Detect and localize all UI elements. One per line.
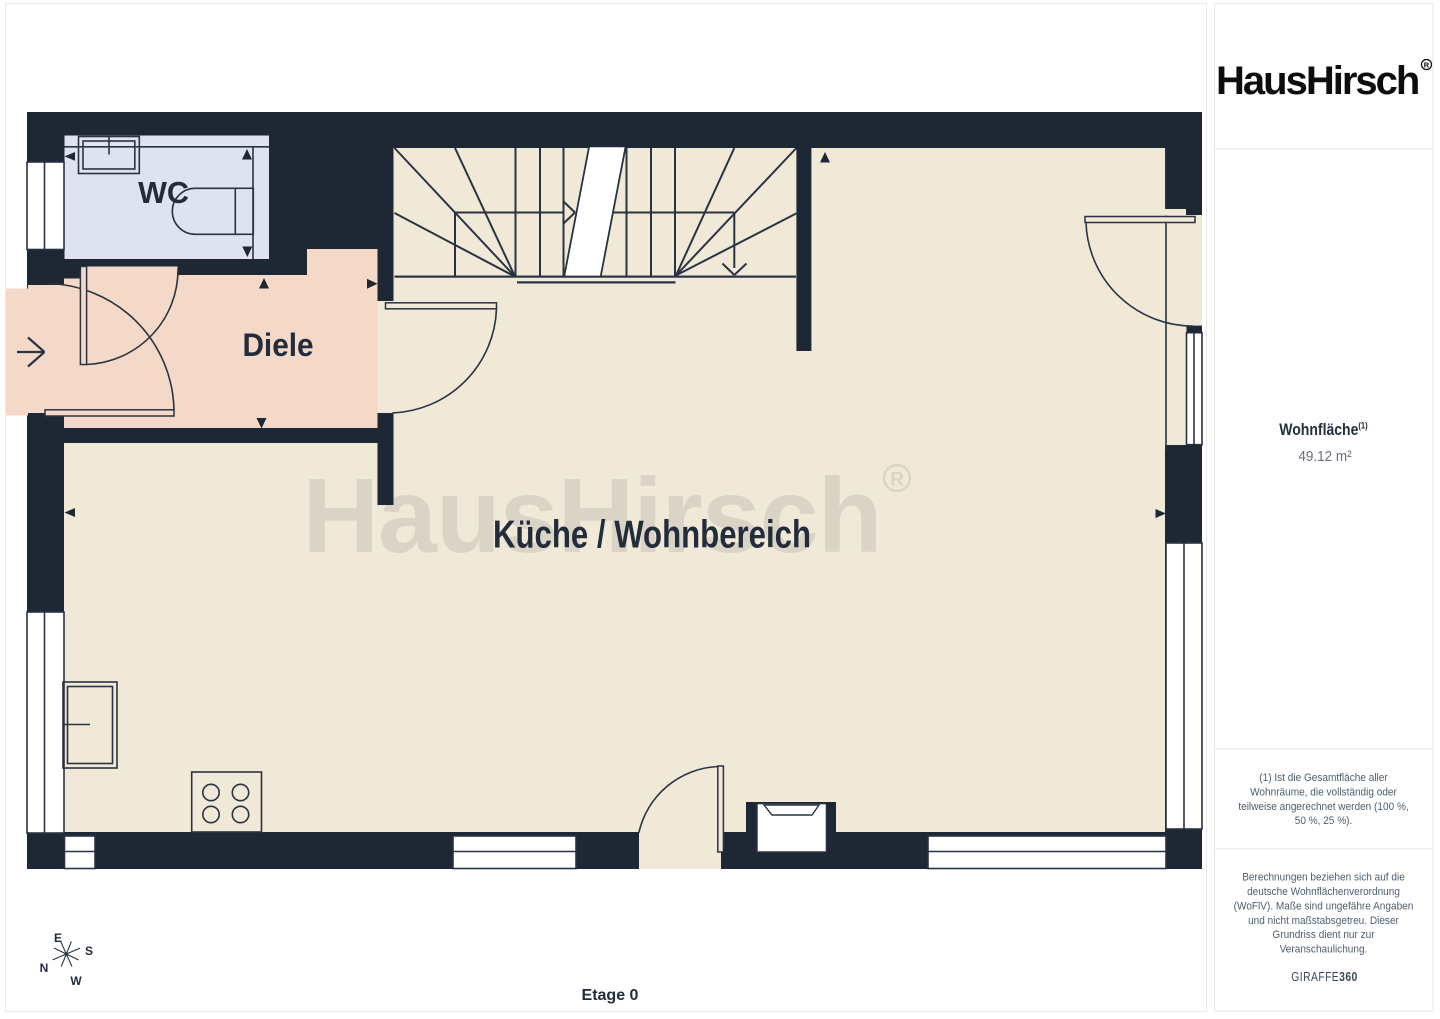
svg-text:Berechnungen beziehen sich auf: Berechnungen beziehen sich auf die bbox=[1242, 871, 1405, 884]
svg-text:GIRAFFE360: GIRAFFE360 bbox=[1291, 970, 1357, 984]
svg-text:Küche / Wohnbereich: Küche / Wohnbereich bbox=[493, 513, 811, 556]
svg-text:HausHirsch: HausHirsch bbox=[1216, 59, 1418, 103]
svg-text:Grundriss dient nur zur: Grundriss dient nur zur bbox=[1272, 929, 1375, 942]
svg-text:N: N bbox=[40, 961, 49, 975]
svg-text:49.12 m²: 49.12 m² bbox=[1298, 448, 1351, 465]
svg-text:W: W bbox=[70, 974, 82, 988]
svg-text:teilweise angerechnet werden (: teilweise angerechnet werden (100 %, bbox=[1238, 800, 1408, 813]
svg-text:50 %, 25 %).: 50 %, 25 %). bbox=[1295, 815, 1353, 828]
svg-text:WC: WC bbox=[138, 176, 189, 210]
svg-text:(WoFlV). Maße sind ungefähre A: (WoFlV). Maße sind ungefähre Angaben bbox=[1234, 900, 1414, 913]
svg-text:Wohnräume, die vollständig ode: Wohnräume, die vollständig oder bbox=[1250, 786, 1397, 799]
svg-text:(1) Ist die Gesamtfläche aller: (1) Ist die Gesamtfläche aller bbox=[1259, 771, 1388, 784]
svg-text:Veranschaulichung.: Veranschaulichung. bbox=[1280, 943, 1368, 956]
svg-text:R: R bbox=[1424, 61, 1430, 70]
svg-text:und nicht maßstabsgetreu. Dies: und nicht maßstabsgetreu. Dieser bbox=[1248, 914, 1399, 927]
svg-text:R: R bbox=[890, 470, 904, 491]
svg-text:Diele: Diele bbox=[242, 327, 313, 363]
svg-text:Wohnfläche(1): Wohnfläche(1) bbox=[1279, 420, 1368, 439]
svg-text:S: S bbox=[85, 944, 93, 958]
svg-text:Etage 0: Etage 0 bbox=[582, 987, 639, 1004]
svg-text:deutsche Wohnflächenverordnung: deutsche Wohnflächenverordnung bbox=[1247, 885, 1400, 898]
svg-text:E: E bbox=[54, 931, 62, 945]
